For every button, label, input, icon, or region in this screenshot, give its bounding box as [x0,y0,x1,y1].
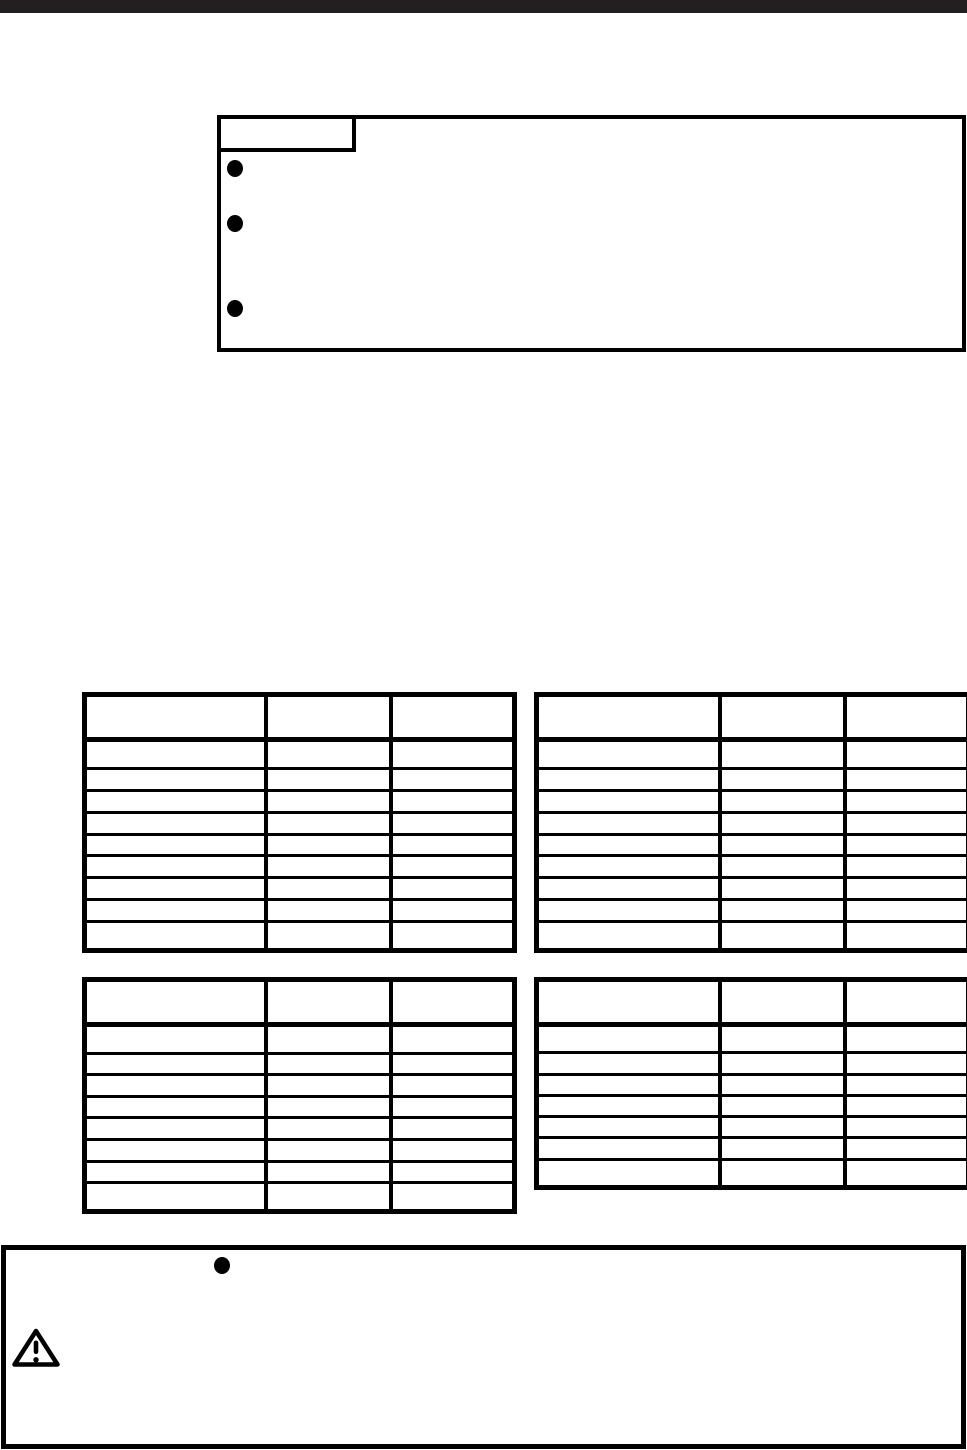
table-row [85,1096,515,1118]
table-row [85,834,515,856]
table-cell [391,834,515,856]
table-header-row [537,980,967,1025]
table-cell [537,921,720,950]
table-cell [391,1161,515,1183]
table-cell [537,899,720,921]
table-cell [391,1140,515,1162]
table-cell [391,921,515,950]
table-cell [85,1025,266,1054]
document-page [0,0,967,1450]
table-row [85,921,515,950]
table-cell [266,921,391,950]
notice-bullet-item [227,160,243,177]
table-cell [720,899,845,921]
table-cell [391,1118,515,1140]
table-cell [85,1075,266,1097]
table-cell [720,834,845,856]
table-cell [845,1095,967,1116]
table-row [85,1118,515,1140]
table-cell [537,1074,720,1095]
table-cell [391,878,515,900]
table-cell [537,1117,720,1138]
table-cell [391,812,515,834]
table-header-row [537,695,967,740]
table-row [85,1075,515,1097]
table-cell [537,812,720,834]
table-cell [720,878,845,900]
table-row [537,834,967,856]
table-cell [845,769,967,791]
table-cell [391,769,515,791]
table-cell [537,1095,720,1116]
table-cell [720,769,845,791]
table-cell [537,1159,720,1187]
table-row [85,1025,515,1054]
table-cell [720,1138,845,1159]
table-row [85,899,515,921]
table-row [85,1161,515,1183]
table-cell [85,1161,266,1183]
table-cell [720,1159,845,1187]
table-cell [845,1074,967,1095]
table-cell [266,1075,391,1097]
table-cell [845,856,967,878]
table-cell [720,1095,845,1116]
table-cell [85,878,266,900]
table-row [537,740,967,769]
table-cell [845,899,967,921]
table-row [537,1159,967,1187]
table-header-cell [85,980,266,1025]
table-cell [266,856,391,878]
table-row [85,740,515,769]
table-cell [845,1138,967,1159]
table-row [85,790,515,812]
table-header-cell [85,695,266,740]
table-row [537,1095,967,1116]
table-cell [537,1025,720,1053]
bullet-icon [227,300,243,317]
table-cell [266,740,391,769]
table-cell [266,1161,391,1183]
bullet-icon [214,1257,230,1274]
notice-bullet-item [227,215,243,232]
table-cell [720,812,845,834]
table-cell [85,1096,266,1118]
table-cell [537,1138,720,1159]
table-row [85,856,515,878]
table-cell [266,1140,391,1162]
table-cell [845,1053,967,1074]
table-cell [391,899,515,921]
bullet-icon [227,215,243,232]
notice-bullet-item [227,300,243,317]
table-cell [85,899,266,921]
table-header-cell [266,695,391,740]
table-header-row [85,695,515,740]
table-cell [266,1183,391,1212]
table-row [85,1183,515,1212]
table-cell [391,1183,515,1212]
table-row [537,812,967,834]
table-row [537,1138,967,1159]
table-cell [266,834,391,856]
table-cell [391,856,515,878]
table-cell [391,740,515,769]
table-cell [85,812,266,834]
table-header-cell [537,980,720,1025]
bullet-icon [227,160,243,177]
table-cell [720,790,845,812]
table-cell [391,1096,515,1118]
table-cell [391,1053,515,1075]
table-row [85,878,515,900]
table-cell [720,856,845,878]
notice-box [217,115,966,352]
table-cell [845,834,967,856]
table-row [537,1025,967,1053]
table-header-cell [845,980,967,1025]
caution-box [1,1245,966,1449]
table-top-right [534,692,967,953]
notice-title-tab [217,115,356,152]
table-bottom-left [82,977,517,1214]
table-cell [266,812,391,834]
table-row [537,1074,967,1095]
table-row [85,812,515,834]
table-cell [720,1025,845,1053]
table-bottom-right [534,977,967,1190]
table-cell [391,1075,515,1097]
table-row [537,1117,967,1138]
table-header-cell [537,695,720,740]
caution-bullet-item [214,1257,230,1274]
table-cell [845,1117,967,1138]
table-cell [266,769,391,791]
table-cell [266,1118,391,1140]
table-row [537,899,967,921]
table-cell [845,1159,967,1187]
table-cell [85,740,266,769]
table-row [537,856,967,878]
table-cell [845,921,967,950]
table-row [537,878,967,900]
table-header-cell [266,980,391,1025]
table-cell [845,812,967,834]
table-cell [537,834,720,856]
table-row [537,1053,967,1074]
table-row [85,1140,515,1162]
table-cell [266,1096,391,1118]
table-header-cell [391,695,515,740]
table-cell [537,790,720,812]
table-cell [266,790,391,812]
table-cell [391,790,515,812]
table-cell [720,921,845,950]
table-cell [85,1183,266,1212]
table-cell [720,1053,845,1074]
warning-triangle-icon [12,1328,60,1368]
table-cell [391,1025,515,1054]
table-cell [537,878,720,900]
table-row [85,1053,515,1075]
table-cell [845,1025,967,1053]
table-cell [85,834,266,856]
table-cell [266,878,391,900]
table-header-row [85,980,515,1025]
table-cell [845,740,967,769]
table-cell [845,878,967,900]
table-header-cell [720,980,845,1025]
table-cell [85,856,266,878]
table-header-cell [845,695,967,740]
table-cell [845,790,967,812]
table-cell [537,740,720,769]
table-row [537,921,967,950]
table-row [537,769,967,791]
table-header-cell [720,695,845,740]
table-cell [537,769,720,791]
table-row [85,769,515,791]
table-cell [85,1118,266,1140]
table-cell [720,1117,845,1138]
table-cell [266,899,391,921]
table-cell [85,790,266,812]
table-cell [537,856,720,878]
table-top-left [82,692,517,953]
table-cell [537,1053,720,1074]
table-cell [720,1074,845,1095]
table-cell [720,740,845,769]
table-cell [85,1053,266,1075]
table-cell [85,1140,266,1162]
table-cell [85,769,266,791]
table-cell [266,1053,391,1075]
table-cell [85,921,266,950]
table-header-cell [391,980,515,1025]
page-top-bar [0,0,967,13]
table-row [537,790,967,812]
table-cell [266,1025,391,1054]
